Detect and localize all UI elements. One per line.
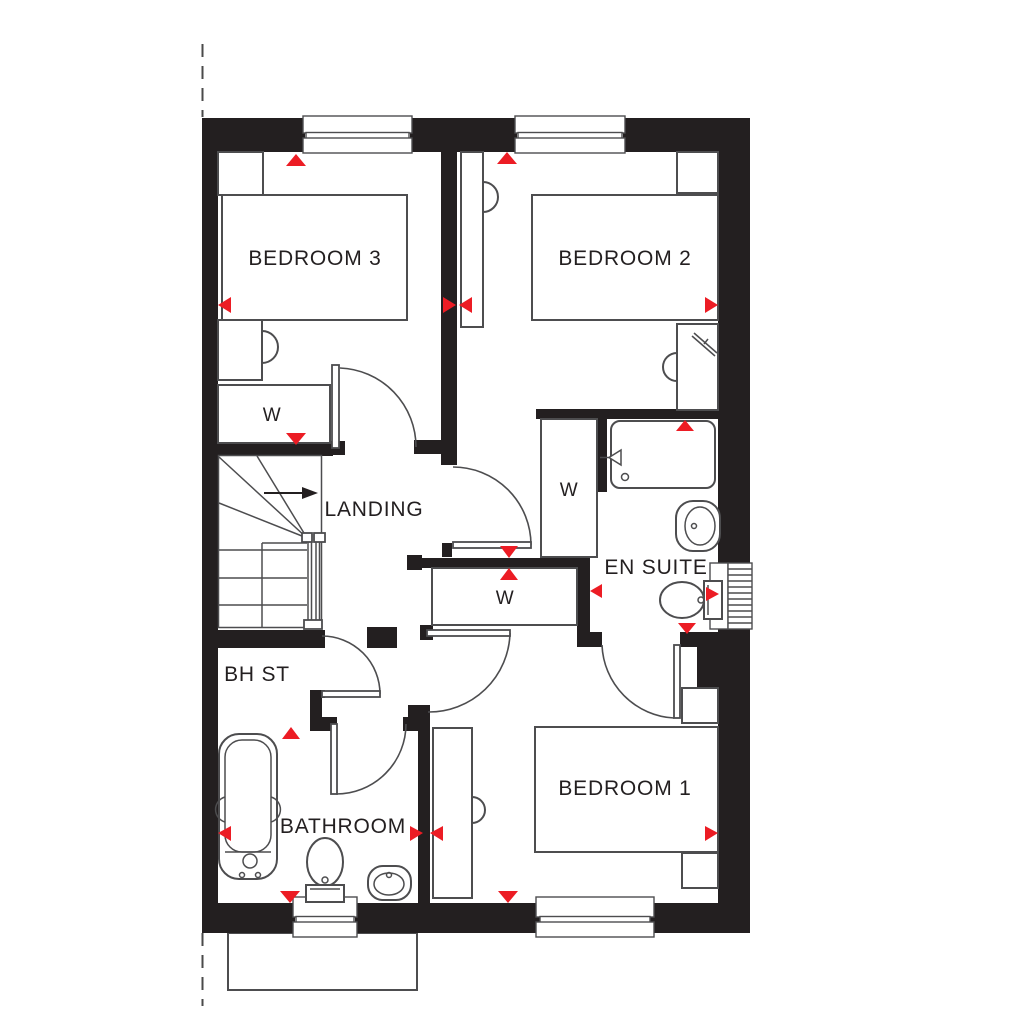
bedroom3-wardrobe-label: W (263, 405, 281, 426)
bedroom1-dressing-table (433, 728, 472, 898)
landing-wardrobe-label: W (560, 480, 578, 501)
lower-projection-outline (228, 933, 417, 990)
bathtub (216, 734, 281, 879)
bedroom1-label: BEDROOM 1 (558, 777, 691, 800)
bedroom3-label: BEDROOM 3 (248, 247, 381, 270)
bedroom2-desk-stool (483, 182, 498, 212)
marker-up-bedroom2-window (497, 152, 517, 164)
bathroom-label: BATHROOM (280, 815, 406, 838)
bedroom1-bedside-table-top (682, 688, 718, 723)
staircase (219, 456, 326, 630)
bedroom1-wardrobe-label: W (496, 588, 514, 609)
bedroom2-door (453, 467, 531, 548)
bedroom2-furniture (461, 152, 718, 410)
ensuite-toilet (660, 581, 722, 619)
bathroom-door (331, 724, 406, 794)
bathroom-basin (368, 866, 411, 900)
ensuite-door (602, 645, 680, 718)
bedroom1-stool (472, 797, 485, 823)
marker-down-landing-wall (500, 546, 518, 558)
bedroom3-door (332, 365, 416, 448)
ensuite-fixtures (600, 421, 722, 619)
stairs-direction-arrow (264, 487, 318, 499)
bhst-label: BH ST (224, 663, 290, 686)
bedroom2-bedside-table (677, 152, 718, 193)
bedroom3-bedside-table (218, 152, 263, 195)
ensuite-basin (676, 501, 720, 551)
marker-down-bedroom1-window (498, 891, 518, 903)
ensuite-label: EN SUITE (604, 556, 707, 579)
marker-up-bedroom3-window (286, 154, 306, 166)
bedroom2-label: BEDROOM 2 (558, 247, 691, 270)
bedroom1-door (427, 630, 510, 712)
bathroom-toilet (306, 838, 344, 902)
bedroom2-window (515, 116, 625, 153)
bedroom2-stool (663, 353, 677, 381)
marker-up-bathroom (282, 727, 300, 739)
bedroom3-window (303, 116, 412, 153)
landing-label: LANDING (325, 498, 424, 521)
floorplan-drawing: BEDROOM 3 BEDROOM 2 LANDING EN SUITE BH … (0, 0, 1024, 1024)
bedroom1-bedside-table-bottom (682, 853, 718, 888)
bedroom3-stool (262, 331, 278, 363)
floorplan-page: BEDROOM 3 BEDROOM 2 LANDING EN SUITE BH … (0, 0, 1024, 1024)
shower-tray (611, 421, 715, 488)
bedroom1-window (536, 897, 654, 937)
bedroom3-dressing-table (218, 320, 262, 380)
marker-left-ensuite (590, 584, 602, 598)
